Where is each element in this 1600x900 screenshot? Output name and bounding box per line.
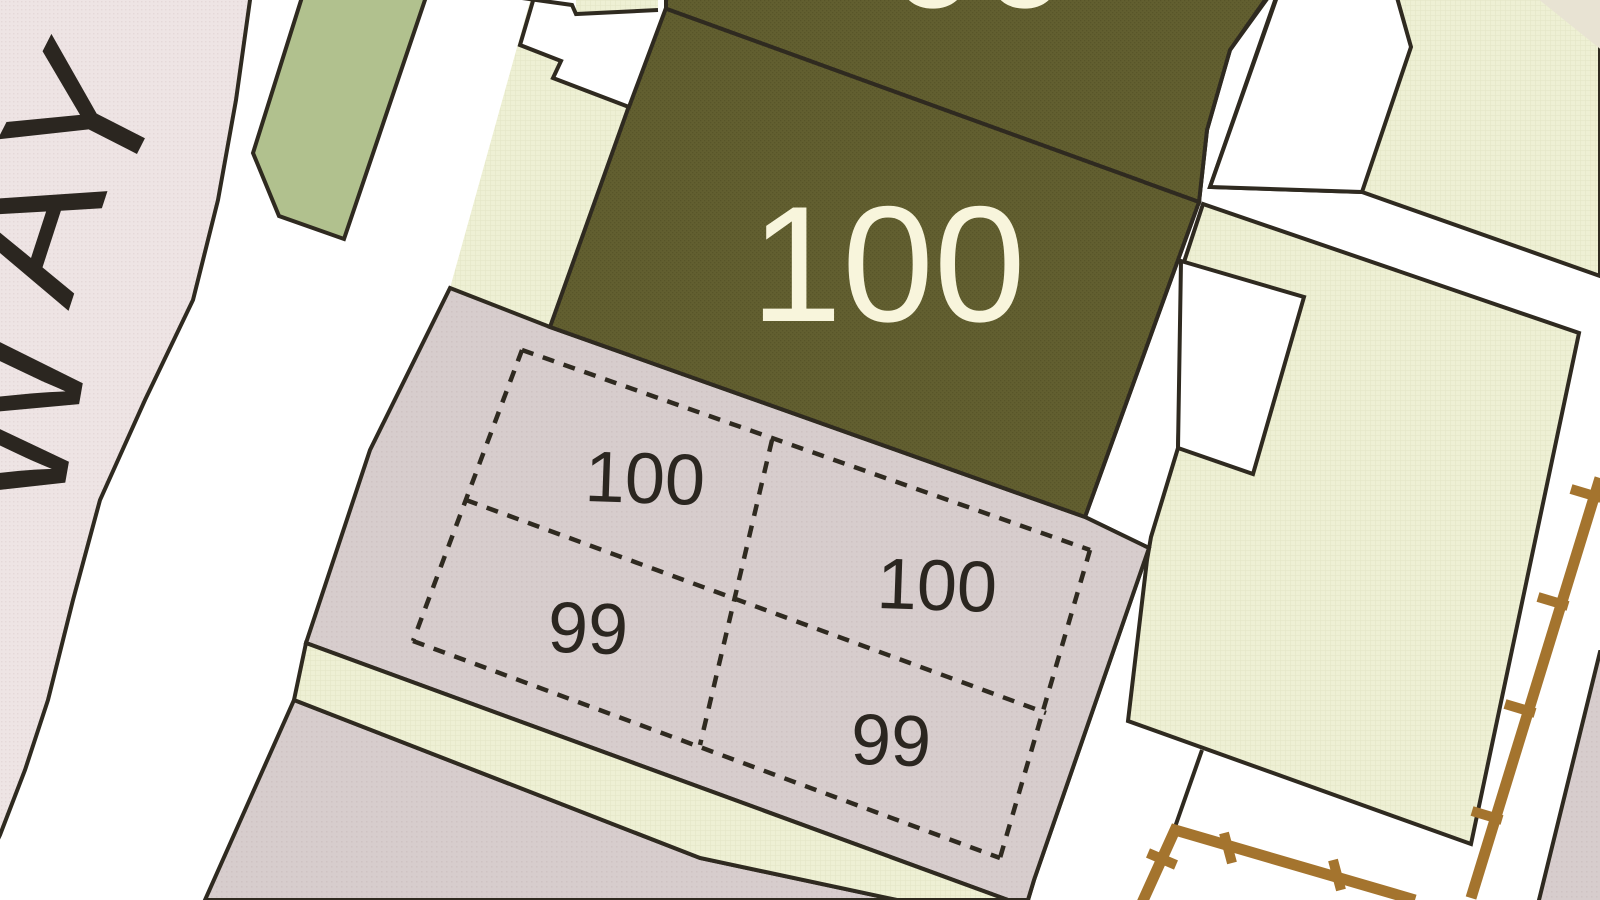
svg-text:99: 99 (850, 700, 933, 783)
svg-text:100: 100 (750, 172, 1025, 356)
svg-text:00: 00 (887, 0, 1071, 42)
svg-text:100: 100 (584, 437, 707, 521)
svg-text:100: 100 (876, 544, 999, 628)
svg-text:99: 99 (547, 588, 630, 671)
